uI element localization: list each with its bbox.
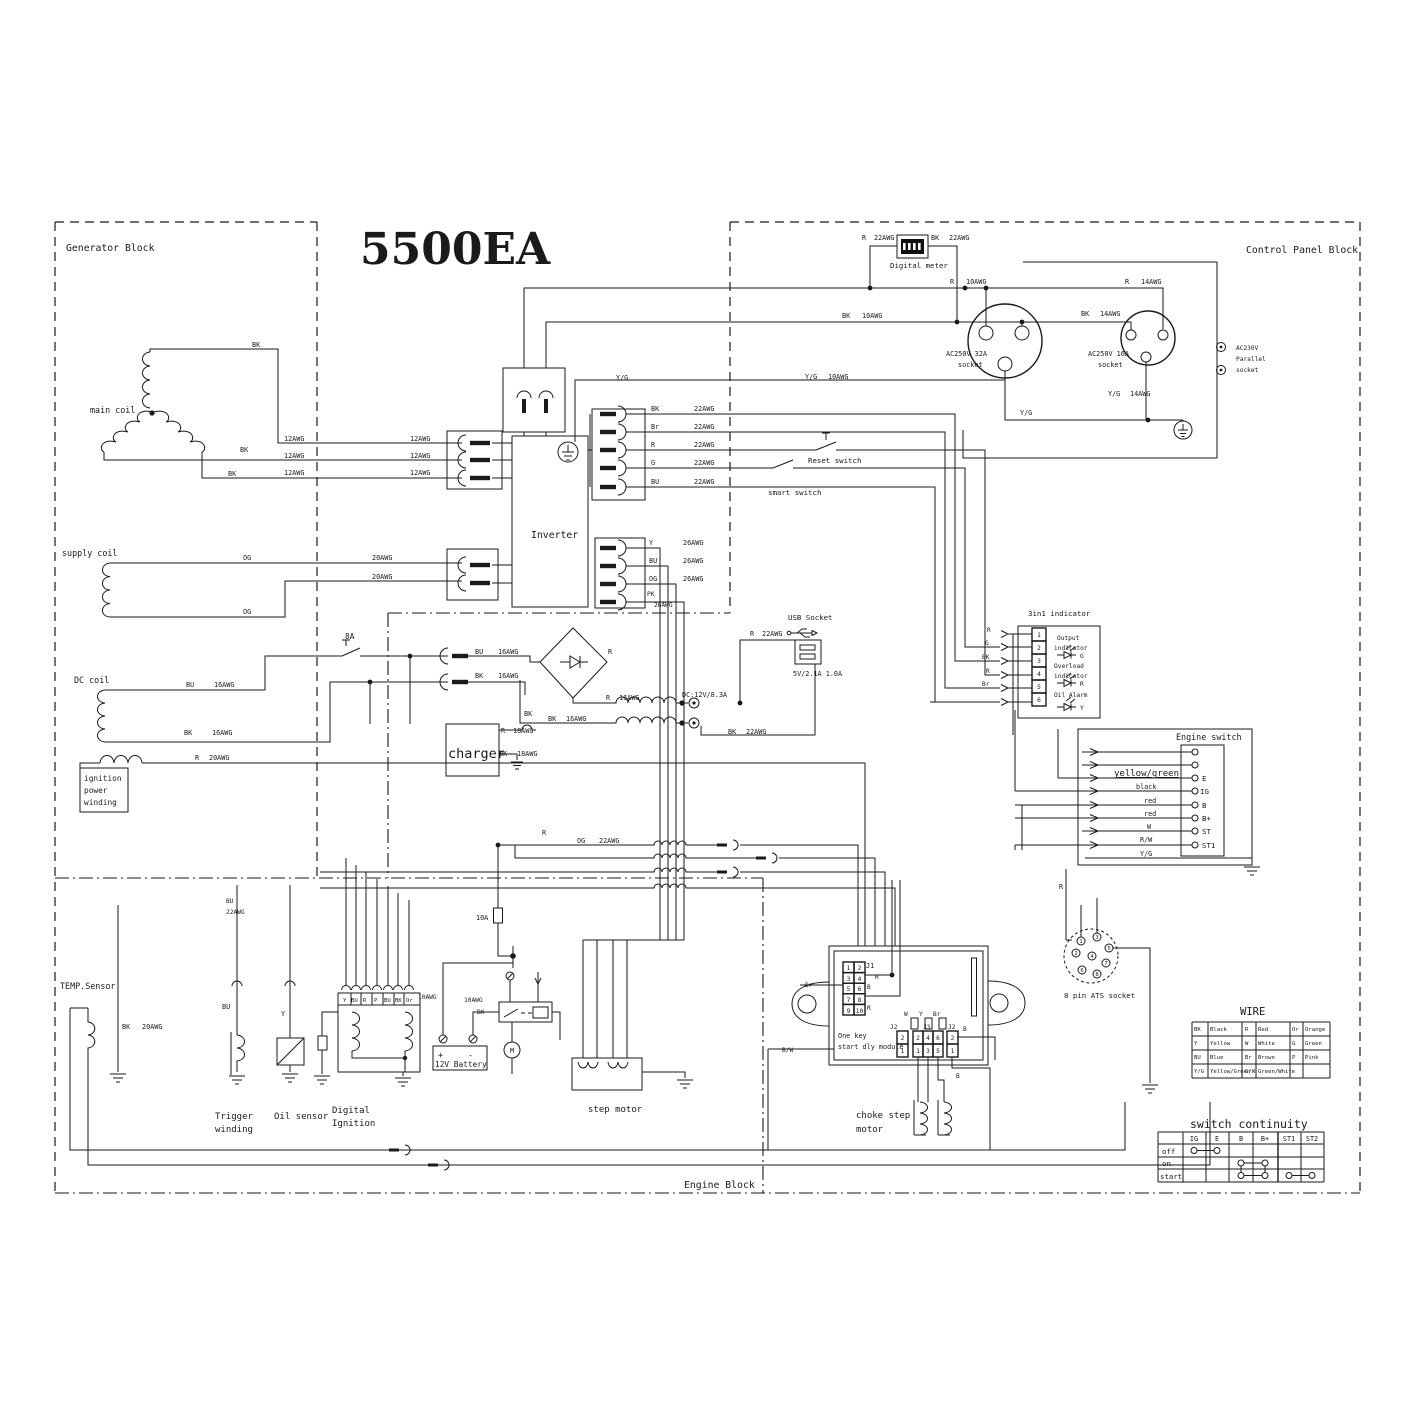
component-label: choke step [856,1111,910,1121]
wire-label: 22AWG [694,423,714,431]
wire-label: B [956,1073,960,1080]
ats-socket [1064,869,1158,1093]
wire-label: Br [651,423,659,431]
control-panel-block-label: Control Panel Block [1246,245,1358,256]
dc-rating-label: DC:12V/8.3A [682,691,727,699]
component-label: Trigger [215,1112,254,1122]
di-terminal: BU [384,998,391,1004]
wire-label: W [904,1011,908,1018]
pin-number: 1 [901,1048,905,1055]
supply-coil-label: supply coil [62,548,117,558]
dc-coil [98,640,469,742]
wire-label: 10AWG [418,994,437,1001]
pin-number: 1 [951,1048,955,1055]
indicator-text: Output [1057,635,1080,642]
wire-label: R [950,278,955,286]
wire-label: 26AWG [683,539,703,547]
wire-label: B/W [782,1047,793,1054]
wire-label: 12AWG [410,469,430,477]
pin-number: 1 [847,965,851,972]
wire-label: Y [919,1011,923,1018]
table-row-label: off [1162,1147,1175,1156]
wire-label: 12AWG [410,435,430,443]
ignition-power-winding [80,756,865,947]
component-label: Digital [332,1106,370,1116]
indicator-pin: 6 [1037,697,1041,704]
pin-number: 1 [916,1048,920,1055]
wire-label: BU [186,681,194,689]
wire-label: BK [842,312,851,320]
table-cell: Red [1258,1027,1268,1033]
switch-terminal: B+ [1202,814,1211,823]
table-cell: Yellow [1210,1041,1231,1047]
wire-label: R [501,727,506,735]
ats-pin: 1 [1079,939,1082,945]
di-terminal: Y [343,998,347,1004]
table-header: ST1 [1283,1135,1295,1143]
wire-label: R [651,441,656,449]
table-cell: BU [1194,1055,1201,1061]
inverter-signal-connector [588,406,1000,702]
indicator-pin: 1 [1037,632,1041,639]
usb-rating-label: 5V/2.1A 1.0A [793,670,842,678]
socket-label: AC250V 16A [1088,350,1129,358]
wire-label: BK [728,728,737,736]
wire-label: R [875,974,879,981]
wire-label: 16AWG [566,715,586,723]
socket-label: socket [1098,361,1123,369]
wire-label: 16AWG [498,648,518,656]
digital-meter-label: Digital meter [890,261,948,270]
wire-label: 12AWG [284,469,304,477]
battery-minus: - [468,1050,473,1060]
digital-ignition [314,858,420,1086]
table-cell: R [1245,1027,1249,1033]
pin-number: 4 [926,1035,930,1042]
charger-label: charger [448,746,505,762]
wire-label: Y [281,1010,285,1018]
wire-label: BK [931,234,940,242]
block-borders [55,222,1360,1193]
schematic-canvas: Generator Block Control Panel Block Engi… [0,0,1416,1416]
pin-number: 8 [858,997,862,1004]
table-row-label: start [1160,1172,1182,1181]
table-cell: Y [1194,1041,1198,1047]
wire-label: BK [184,729,193,737]
wire-label: 26AWG [683,575,703,583]
table-cell: Orange [1305,1027,1326,1033]
battery-plus: + [438,1050,443,1060]
page-title: 5500EA [360,224,551,275]
table-header: ST2 [1306,1135,1318,1143]
wire-label: 14AWG [1100,310,1120,318]
wire-label: 20AWG [372,554,392,562]
fuse-8a-label: 8A [345,632,355,641]
wire-label: red [1144,810,1156,818]
reset-switch-label: Reset switch [808,456,861,465]
wire-label: 10AWG [828,373,848,381]
usb-socket-label: USB Socket [788,613,833,622]
wire-label: 22AWG [694,405,714,413]
socket-label: socket [1236,367,1259,374]
ac250v-16a-socket [1121,311,1175,365]
inverter-dc-connector [595,538,684,940]
wire-label: BK [1081,310,1090,318]
wire-label: BU [651,478,659,486]
wire-label: 10AWG [862,312,882,320]
table-cell: Brown [1258,1055,1275,1061]
indicator-led-color: R [1080,681,1084,688]
wire-label: 22AWG [694,478,714,486]
socket-label: AC230V [1236,345,1259,352]
table-cell: Pink [1305,1055,1319,1061]
wire-label: 22AWG [599,837,619,845]
connector-label: J2 [890,1024,898,1031]
indicator-pin: 5 [1037,684,1041,691]
wire-label: 20AWG [142,1023,162,1031]
wire-label: BK [228,470,237,478]
starter-motor-m: M [510,1047,514,1055]
wire-label: BU [475,648,483,656]
ats-pin: 5 [1107,946,1110,952]
socket-label: Parallel [1236,356,1266,363]
wire-label: 22AWG [762,630,782,638]
battery-label: 12V Battery [435,1060,487,1069]
dc-coil-label: DC coil [74,675,109,685]
one-key-module [768,880,1025,1150]
table-cell: Green [1305,1041,1322,1047]
pin-number: 3 [847,976,851,983]
pin-number: 10 [856,1008,864,1015]
engine-switch-label: Engine switch [1176,732,1242,742]
wire-label: BU [649,557,657,565]
table-cell: White [1258,1041,1275,1047]
indicator-pin: 3 [1037,658,1041,665]
ats-pin: 3 [1095,935,1098,941]
wire-label: Y/G [805,373,817,381]
wire-label: Br [805,982,813,989]
module-label: One key [838,1032,867,1040]
fuse-10a-label: 10A [476,914,488,922]
wire-label: R [1059,883,1064,891]
indicator-title: 3in1 indicator [1028,609,1091,618]
wire-label: BK [122,1023,131,1031]
indicator-text: Overload [1054,663,1084,670]
table-cell: W [1245,1041,1249,1047]
engine-block-label: Engine Block [684,1180,755,1191]
wire-label: 12AWG [284,452,304,460]
pin-number: 5 [936,1048,940,1055]
wire-label: BK [240,446,249,454]
pin-number: 4 [858,976,862,983]
wire-label: Y/G [1140,850,1152,858]
table-cell: Or [1292,1027,1299,1033]
table-cell: Black [1210,1027,1227,1033]
wire-label: BU [222,1003,230,1011]
component-label: winding [215,1125,253,1135]
wire-label: 22AWG [226,909,245,916]
wire-label: G [651,459,655,467]
step-motor-label: step motor [588,1105,643,1115]
usb-socket [787,629,821,664]
main-coil-label: main coil [90,405,135,415]
wire-label: R [986,668,990,675]
temp-sensor-label: TEMP.Sensor [60,981,115,991]
wire-label: 20AWG [209,754,229,762]
wire-label: BK [982,654,990,661]
wire-label: R [867,1005,871,1012]
wire-label: yellow/green [1114,769,1179,779]
indicator-led-color: Y [1080,705,1084,712]
generator-block-label: Generator Block [66,243,155,254]
component-label: motor [856,1125,884,1135]
socket-label: AC250V 32A [946,350,987,358]
pin-number: 6 [936,1035,940,1042]
wire-label: R [750,630,755,638]
ats-socket-label: 8 pin ATS socket [1064,991,1135,1000]
wire-label: BU [226,898,234,905]
component-label: Ignition [332,1119,375,1129]
wire-label: 12AWG [284,435,304,443]
wire-label: R [608,648,613,656]
digital-meter [897,235,928,258]
wire-label: R [862,234,867,242]
wire-label: Y [649,539,653,547]
oil-sensor-label: Oil sensor [274,1112,329,1122]
table-cell: Br [1245,1055,1252,1061]
pin-number: 2 [901,1035,905,1042]
wire-label: R [606,694,611,702]
switch-terminal: IG [1200,787,1209,796]
ats-pin: 6 [1080,968,1083,974]
supply-coil [103,549,513,617]
inverter-label: Inverter [531,530,578,541]
table-cell: Y/G [1194,1069,1205,1075]
table-cell: Blue [1210,1055,1224,1061]
wire-label: 22AWG [874,234,894,242]
wire-label: 10AWG [464,997,483,1004]
pin-number: 6 [858,986,862,993]
wire-label: BK [252,341,261,349]
socket-label: socket [958,361,983,369]
di-terminal: R [363,998,367,1004]
wire-label: G [985,640,989,647]
wire-label: W [1147,823,1152,831]
wire-label: 18AWG [517,750,537,758]
indicator-led-color: G [1080,653,1084,660]
component-label: winding [84,798,117,807]
table-cell: BK [1194,1027,1201,1033]
switch-terminal: ST1 [1202,841,1215,850]
wire-label: Br [933,1011,941,1018]
parallel-socket [1217,343,1226,375]
indicator-pin: 4 [1037,671,1041,678]
indicator-pin: 2 [1037,645,1041,652]
wire-label: 26AWG [683,557,703,565]
wire-label: R/W [1140,836,1153,844]
connector-label: J2 [948,1024,956,1031]
wire-label: OG [649,575,657,583]
wire-label: R [542,829,547,837]
wire-label: R [1125,278,1130,286]
table-header: E [1215,1135,1219,1143]
wire-label: 22AWG [694,459,714,467]
switch-terminal: B [1202,801,1207,810]
starter-circuit [433,843,560,1074]
table-header: B+ [1261,1135,1269,1143]
wire-label: 20AWG [372,573,392,581]
wire-label: 14AWG [1141,278,1161,286]
rectifier-bridge [468,628,607,698]
wire-label: 26AWG [654,602,673,609]
module-label: start dly module [838,1043,903,1051]
wire-label: 22AWG [746,728,766,736]
di-terminal: Or [406,998,413,1004]
pin-number: 2 [858,965,862,972]
wire-label: 22AWG [949,234,969,242]
wire-label: PK [647,591,655,598]
di-terminal: BK [395,998,402,1004]
wire-label: Y/G [1108,390,1120,398]
wire-label: red [1144,797,1156,805]
continuity-title: switch continuity [1190,1117,1308,1131]
wire-label: B [867,984,871,991]
ats-pin: 7 [1104,961,1107,967]
wire-label: BK [475,672,484,680]
pin-number: 5 [847,986,851,993]
wire-label: BK [548,715,557,723]
main-coil [101,349,512,478]
wire-label: BK [499,750,508,758]
panel-ground [1174,421,1192,439]
wire-label: 16AWG [214,681,234,689]
table-cell: P [1292,1055,1296,1061]
wire-label: OG [243,554,251,562]
step-motor [572,1058,693,1090]
pin-number: 2 [951,1035,955,1042]
oil-sensor [277,885,304,1082]
connector-label: J1 [866,962,874,970]
wire-label: 10AWG [966,278,986,286]
table-row-label: on [1162,1159,1171,1168]
component-label: ignition [84,774,122,783]
switch-terminal: ST [1202,827,1211,836]
table-header: IG [1190,1135,1198,1143]
wire-label: OG [577,837,585,845]
pin-number: 7 [847,997,851,1004]
ats-pin: 2 [1074,951,1077,957]
component-label: power [84,786,108,795]
wire-label: 16AWG [498,672,518,680]
wire-label: 16AWG [212,729,232,737]
wire-label: Br [982,681,990,688]
wire-label: BK [524,710,533,718]
wire-label: black [1136,783,1156,791]
wire-label: B [963,1026,967,1033]
wire-label: Y/G [616,374,628,382]
pin-number: 9 [847,1008,851,1015]
wire-label: 18AWG [513,727,533,735]
switch-terminal: E [1202,774,1206,783]
indicator-text: indicator [1054,673,1088,680]
indicator-text: Oil Alarm [1054,692,1088,699]
wire-label: R [195,754,200,762]
wire-label: 12AWG [410,452,430,460]
wire-label: 22AWG [694,441,714,449]
table-cell: G [1292,1041,1296,1047]
wire-table-title: WIRE [1240,1006,1265,1018]
table-cell: Green/White [1258,1069,1296,1075]
wire-label: BK [651,405,660,413]
wire-label: BK [477,1009,485,1016]
di-terminal: P [374,998,378,1004]
pin-number: 2 [916,1035,920,1042]
wire-label: Y/G [1020,409,1032,417]
smart-switch-label: smart switch [768,488,821,497]
wiring-diagram: Generator Block Control Panel Block Engi… [0,0,1416,1416]
indicator-text: indicator [1054,645,1088,652]
connector-label: J3 [923,1024,931,1031]
wire-label: OG [243,608,251,616]
pin-number: 3 [926,1048,930,1055]
di-terminal: BU [351,998,358,1004]
table-cell: G/W [1245,1069,1256,1075]
wire-label: 16AWG [619,694,639,702]
wire-label: 14AWG [1130,390,1150,398]
wire-label: R [987,627,991,634]
table-header: B [1239,1135,1243,1143]
